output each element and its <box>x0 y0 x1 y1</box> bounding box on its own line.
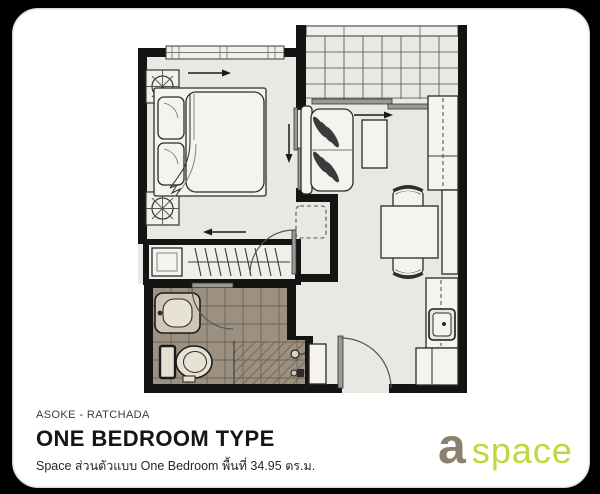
unit-type-title: ONE BEDROOM TYPE <box>36 426 315 452</box>
bedroom-window <box>166 46 284 59</box>
wardrobe <box>146 242 298 282</box>
unit-description: Space ส่วนตัวแบบ One Bedroom พื้นที่ 34.… <box>36 456 315 476</box>
kitchen-counter <box>426 278 458 348</box>
footer: ASOKE - RATCHADA ONE BEDROOM TYPE Space … <box>36 409 315 476</box>
shoe-cabinet <box>309 344 326 384</box>
brand-logo: a space <box>438 421 573 471</box>
kitchen-sink <box>429 309 455 340</box>
column-symbol <box>146 192 179 225</box>
tv-cabinet <box>428 96 458 190</box>
logo-letter-a: a <box>438 421 466 471</box>
side-counter <box>442 190 458 274</box>
dining-table <box>381 206 438 258</box>
lower-counter <box>416 348 458 385</box>
pillow <box>158 97 184 139</box>
pillow <box>158 143 184 185</box>
sofa <box>301 106 353 194</box>
coffee-table <box>362 120 387 168</box>
logo-word-space: space <box>472 433 573 469</box>
project-location: ASOKE - RATCHADA <box>36 409 315 421</box>
duvet <box>186 92 264 192</box>
bed <box>154 88 266 196</box>
